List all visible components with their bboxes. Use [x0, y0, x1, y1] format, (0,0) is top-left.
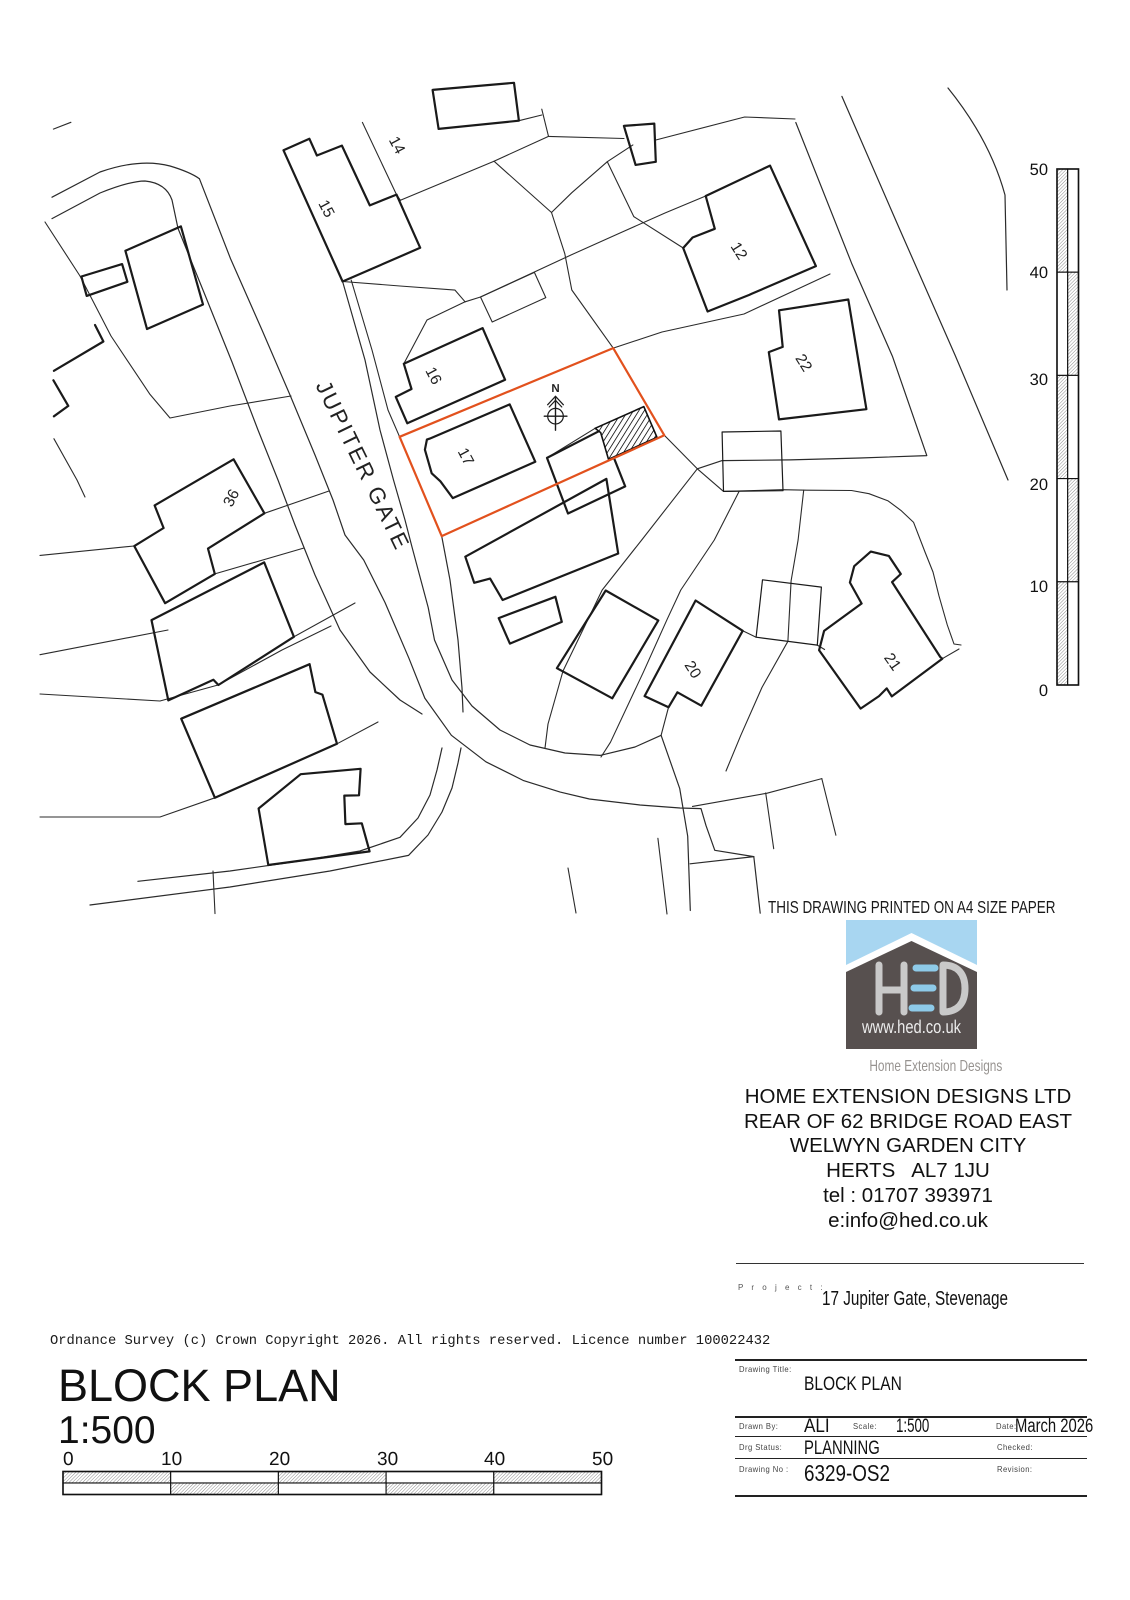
- svg-text:www.hed.co.uk: www.hed.co.uk: [861, 1016, 961, 1037]
- svg-text:40: 40: [1030, 264, 1048, 282]
- svg-text:14: 14: [385, 134, 408, 158]
- svg-text:40: 40: [484, 1449, 505, 1470]
- svg-text:20: 20: [269, 1449, 290, 1470]
- svg-text:30: 30: [1030, 371, 1048, 389]
- svg-text:17: 17: [454, 445, 477, 468]
- svg-text:30: 30: [377, 1449, 398, 1470]
- svg-text:36: 36: [220, 487, 243, 510]
- svg-text:N: N: [551, 383, 559, 395]
- svg-text:22: 22: [792, 351, 816, 375]
- svg-text:21: 21: [880, 650, 904, 674]
- svg-text:50: 50: [592, 1449, 613, 1470]
- svg-text:50: 50: [1030, 161, 1048, 179]
- svg-text:15: 15: [314, 197, 337, 220]
- svg-text:16: 16: [422, 364, 445, 387]
- svg-text:20: 20: [681, 658, 705, 682]
- svg-text:0: 0: [1039, 682, 1048, 700]
- svg-text:12: 12: [727, 239, 751, 263]
- svg-text:10: 10: [161, 1449, 182, 1470]
- svg-text:10: 10: [1030, 578, 1048, 596]
- svg-text:20: 20: [1030, 476, 1048, 494]
